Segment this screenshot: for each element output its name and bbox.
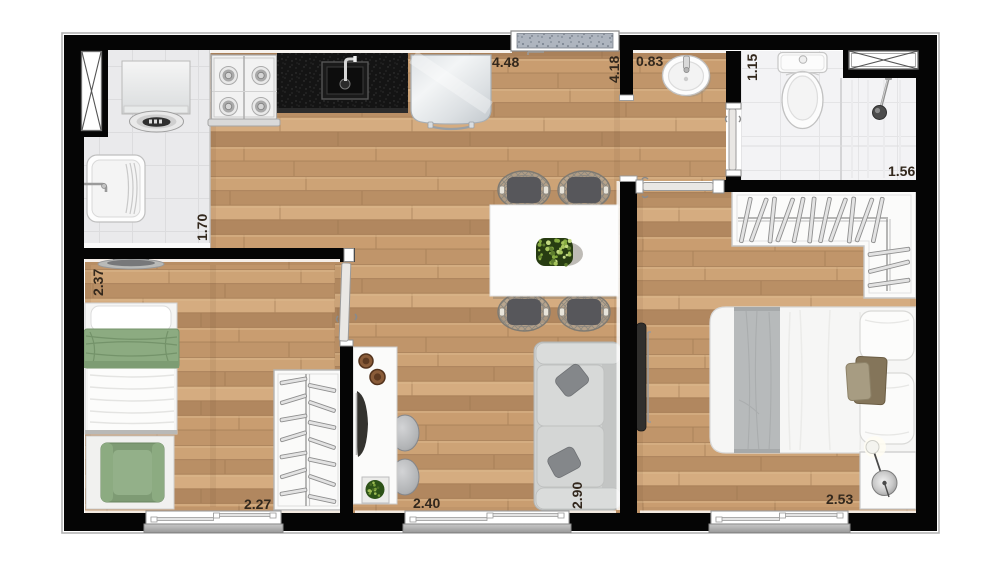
svg-text:4.18: 4.18 (606, 56, 622, 83)
svg-text:1.15: 1.15 (744, 54, 760, 81)
svg-text:2.90: 2.90 (569, 482, 585, 509)
svg-text:0.83: 0.83 (636, 53, 663, 69)
svg-text:2.53: 2.53 (826, 491, 853, 507)
svg-text:1.70: 1.70 (194, 214, 210, 241)
svg-text:4.48: 4.48 (492, 54, 519, 70)
svg-text:2.37: 2.37 (90, 269, 106, 296)
svg-text:1.56: 1.56 (888, 163, 915, 179)
svg-text:2.27: 2.27 (244, 496, 271, 512)
svg-text:2.40: 2.40 (413, 495, 440, 511)
